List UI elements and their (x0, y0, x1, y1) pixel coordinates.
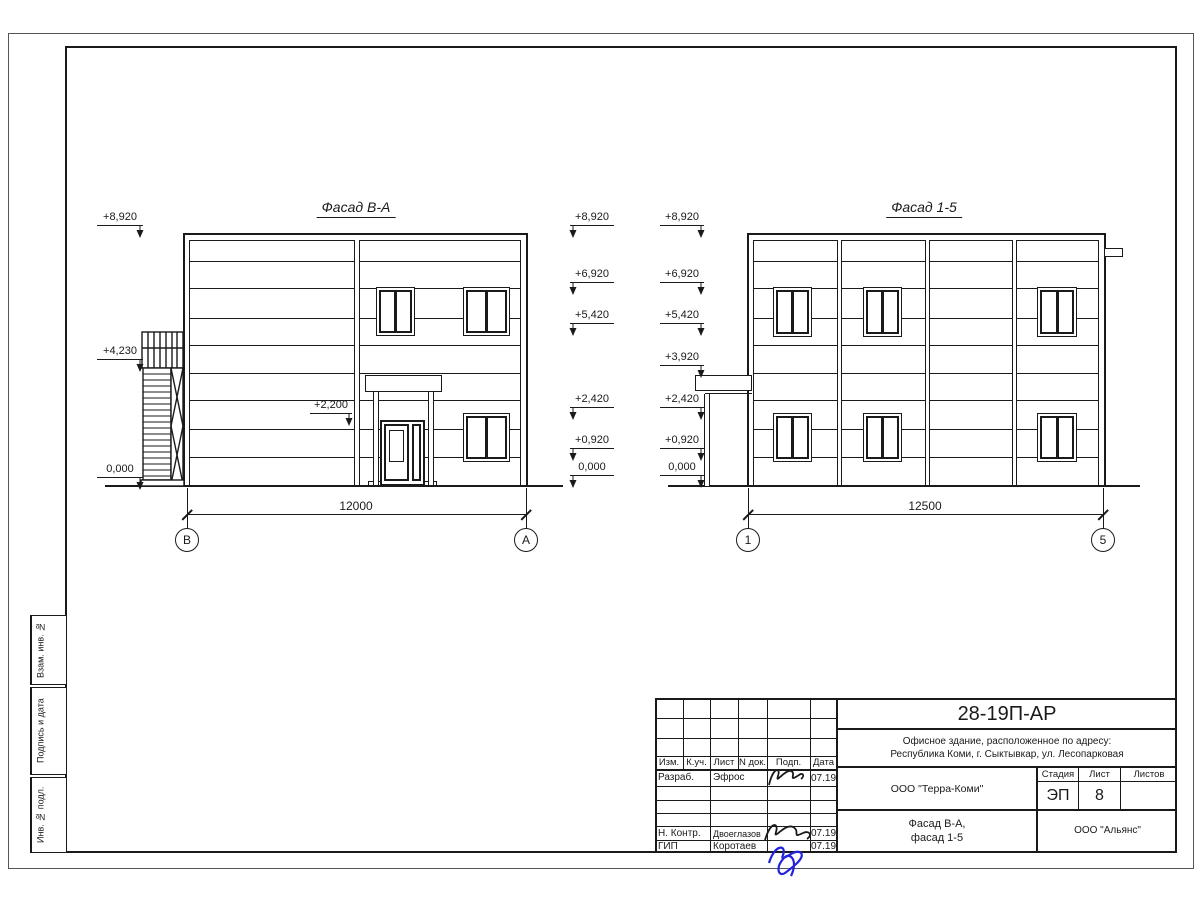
elevation-arrow-icon (696, 475, 706, 488)
elevation-mark: +2,420 (660, 393, 704, 408)
elevation-mark-entrance: +2,200 (310, 399, 352, 414)
elevation-arrow-icon (696, 323, 706, 336)
axis-bubble-a: А (514, 528, 538, 552)
facade-ba-center-pilaster (354, 240, 360, 485)
signatures (755, 755, 825, 880)
facade-ba-title: Фасад В-А (317, 199, 396, 218)
ground-line-15 (668, 485, 1140, 487)
stamp-list-header: Лист (1079, 768, 1120, 781)
stamp-line (837, 728, 1177, 730)
stamp-doc-title: Фасад В-А, фасад 1-5 (838, 811, 1036, 851)
sidebar-label: Взам. инв. № (31, 616, 49, 684)
facade-ba-external-stair (139, 326, 186, 487)
elevation-mark: +8,920 (570, 211, 614, 226)
stamp-nkontr-label: Н. Контр. (658, 828, 713, 840)
facade-ba-entrance-column (373, 392, 379, 485)
sidebar-box-vzam: Взам. инв. № (30, 615, 67, 685)
facade-ba-window (376, 287, 415, 336)
facade-15-pilaster (1012, 240, 1017, 485)
facade-15-roof-outlet (1104, 248, 1123, 257)
elevation-arrow-icon (568, 448, 578, 461)
extension-line (1103, 488, 1104, 529)
sidebar-box-inv: Инв. № подл. (30, 777, 67, 853)
stamp-header-kuch: К.уч. (683, 757, 710, 769)
facade-15-window (863, 413, 902, 462)
elevation-mark: +0,920 (660, 434, 704, 449)
elevation-arrow-icon (135, 359, 145, 372)
stamp-line (655, 718, 837, 719)
sidebar-label: Инв. № подл. (31, 778, 49, 852)
stamp-stage-value: ЭП (1038, 782, 1078, 809)
stamp-header-list: Лист (710, 757, 738, 769)
facade-15-pilaster (925, 240, 930, 485)
doc-title-line-1: Фасад В-А, (909, 817, 966, 831)
elevation-arrow-icon (135, 477, 145, 490)
door-leaf (384, 424, 409, 481)
sidebar-box-podpis: Подпись и дата (30, 687, 67, 775)
elevation-arrow-icon (696, 448, 706, 461)
facade-ba-window (463, 287, 510, 336)
elevation-mark: +5,420 (570, 309, 614, 324)
stamp-org2: ООО "Альянс" (1038, 811, 1177, 851)
elevation-arrow-icon (344, 413, 354, 426)
dimension-line-ba (187, 514, 527, 515)
facade-15-corner-pilaster-right (1098, 240, 1104, 485)
signature-gip (769, 848, 802, 876)
facade-15-canopy-fascia (705, 393, 752, 394)
stamp-list-value: 8 (1079, 782, 1120, 809)
stamp-project-address: Офисное здание, расположенное по адресу:… (837, 731, 1177, 767)
drawing-sheet: Фасад В-А (0, 0, 1200, 900)
axis-bubble-5: 5 (1091, 528, 1115, 552)
stamp-gip-label: ГИП (658, 841, 710, 853)
facade-15-pilaster (837, 240, 842, 485)
elevation-mark: +4,230 (97, 345, 143, 360)
facade-ba-entrance-door (380, 420, 425, 486)
elevation-mark: +5,420 (660, 309, 704, 324)
facade-15-title: Фасад 1-5 (886, 199, 962, 218)
facade-15-window (773, 287, 812, 337)
elevation-mark: +3,920 (660, 351, 704, 366)
stamp-razrab-label: Разраб. (658, 772, 710, 784)
elevation-arrow-icon (568, 225, 578, 238)
extension-line (187, 488, 188, 529)
dimension-text-ba: 12000 (316, 499, 396, 513)
facade-15-window (863, 287, 902, 337)
dimension-line-15 (748, 514, 1104, 515)
facade-ba-entrance-canopy (365, 375, 442, 392)
elevation-arrow-icon (696, 365, 706, 378)
elevation-mark: +6,920 (660, 268, 704, 283)
elevation-arrow-icon (696, 407, 706, 420)
stamp-header-izm: Изм. (655, 757, 683, 769)
facade-ba-window (463, 413, 510, 462)
dimension-text-15: 12500 (885, 499, 965, 513)
axis-bubble-1: 1 (736, 528, 760, 552)
facade-15-corner-pilaster-left (749, 240, 754, 485)
door-sidelight (412, 424, 421, 481)
elevation-mark: +0,920 (570, 434, 614, 449)
sidebar-label: Подпись и дата (31, 688, 49, 774)
elevation-mark: 0,000 (97, 463, 143, 478)
elevation-mark: +6,920 (570, 268, 614, 283)
facade-ba-corner-pilaster-right (520, 240, 526, 485)
facade-ba-entrance-column (428, 392, 434, 485)
extension-line (748, 488, 749, 529)
elevation-arrow-icon (568, 475, 578, 488)
elevation-arrow-icon (568, 407, 578, 420)
elevation-arrow-icon (696, 282, 706, 295)
signature-nkontr (765, 825, 810, 840)
stamp-org1: ООО "Терра-Коми" (838, 768, 1036, 809)
stamp-line (655, 738, 837, 739)
axis-bubble-b: В (175, 528, 199, 552)
stamp-listov-header: Листов (1121, 768, 1177, 781)
facade-15-window (773, 413, 812, 462)
elevation-arrow-icon (568, 323, 578, 336)
elevation-arrow-icon (696, 225, 706, 238)
doc-title-line-2: фасад 1-5 (911, 831, 963, 845)
elevation-mark: 0,000 (660, 461, 704, 476)
stamp-stage-header: Стадия (1038, 768, 1078, 781)
door-glass (389, 430, 404, 462)
facade-15-window (1037, 413, 1077, 462)
elevation-mark: 0,000 (570, 461, 614, 476)
address-line-2: Республика Коми, г. Сыктывкар, ул. Лесоп… (837, 748, 1177, 761)
elevation-mark: +8,920 (660, 211, 704, 226)
stamp-doc-code: 28-19П-АР (837, 699, 1177, 728)
facade-15-window (1037, 287, 1077, 337)
elevation-mark: +2,420 (570, 393, 614, 408)
extension-line (526, 488, 527, 529)
address-line-1: Офисное здание, расположенное по адресу: (837, 735, 1177, 748)
elevation-arrow-icon (568, 282, 578, 295)
elevation-arrow-icon (135, 225, 145, 238)
signature-razrab (769, 770, 803, 785)
elevation-mark: +8,920 (97, 211, 143, 226)
